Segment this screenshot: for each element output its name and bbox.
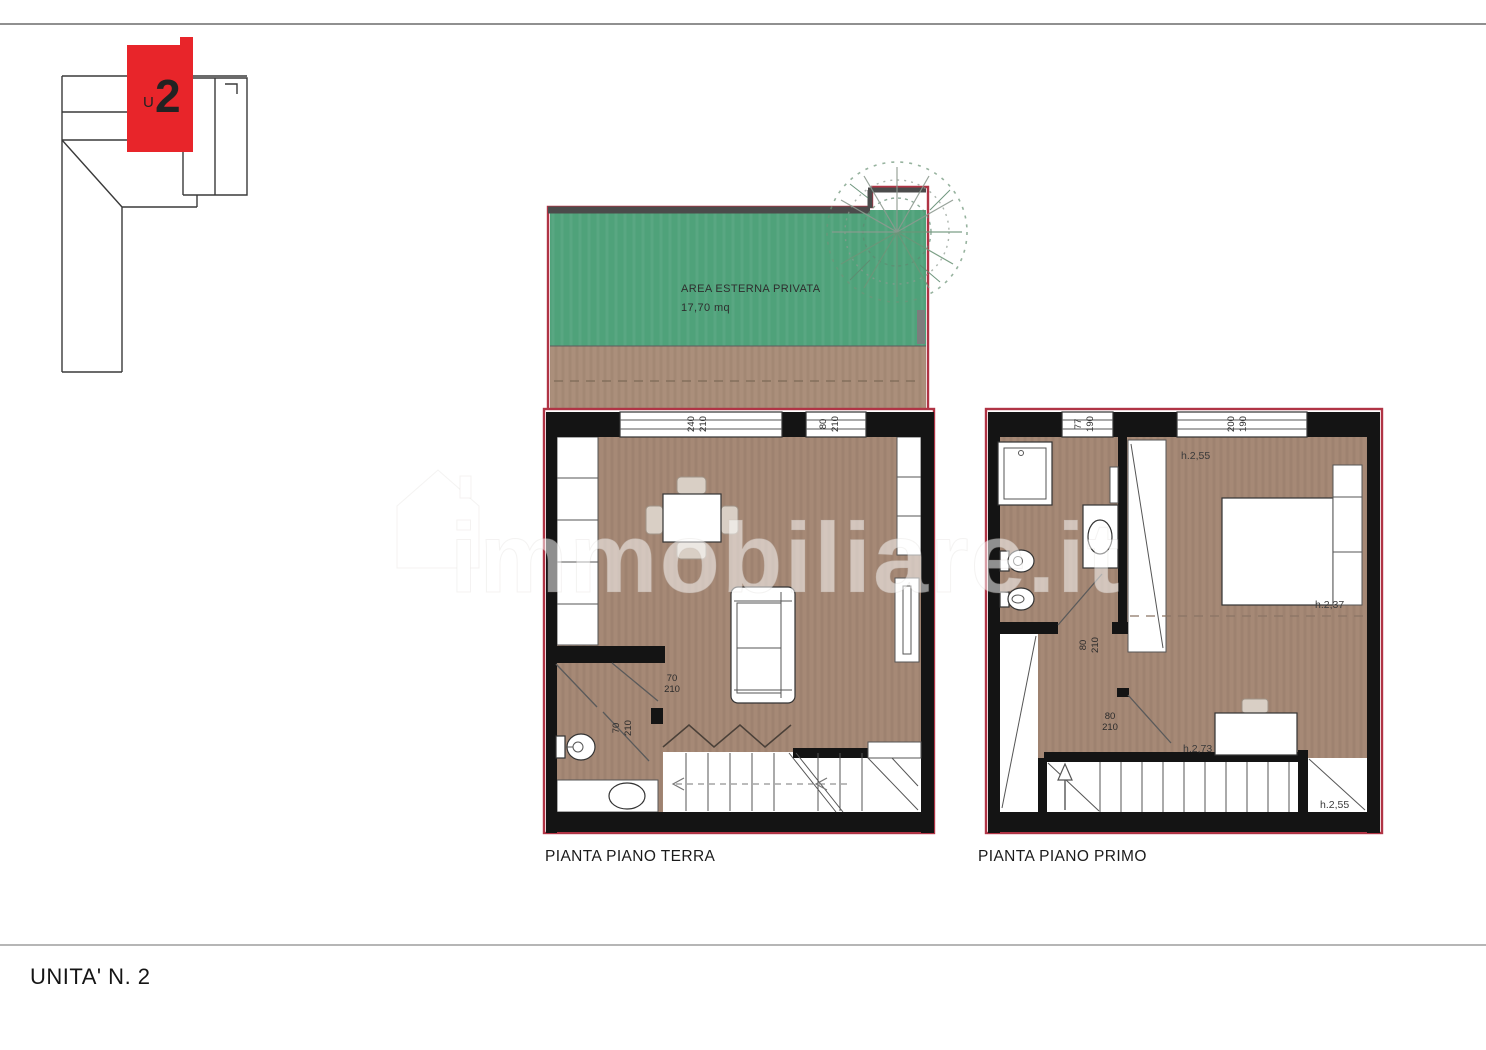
dim-gf-door-hall-h: 210 xyxy=(664,684,680,695)
ff-height-bedroom: h.2,55 xyxy=(1181,450,1210,462)
dim-gf-window-main-h: 210 xyxy=(698,416,709,432)
terrace-pillar xyxy=(917,310,925,344)
key-plan: U 2 xyxy=(62,37,247,372)
dim-ff-window-bath-w: 77 xyxy=(1073,419,1084,430)
gf-stairs-area xyxy=(663,752,921,812)
tree-icon xyxy=(827,162,967,302)
first-floor-plan: 77 190 200 190 80 210 80 210 h.2,55 h.2,… xyxy=(986,409,1382,833)
unit-number-label: 2 xyxy=(155,70,181,122)
terrace-area-value: 17,70 mq xyxy=(681,302,730,314)
ff-shower xyxy=(998,442,1052,505)
footer-unit-label: UNITA' N. 2 xyxy=(30,964,151,989)
terrace-label: AREA ESTERNA PRIVATA xyxy=(681,283,821,295)
terrace-area: AREA ESTERNA PRIVATA 17,70 mq xyxy=(548,162,967,410)
ff-stairs-area xyxy=(1047,762,1298,812)
ff-height-stairs: h.2,73 xyxy=(1183,743,1212,755)
ground-floor-plan: 240 210 80 210 70 210 70 210 xyxy=(544,409,934,833)
dim-ff-door-bath-w: 80 xyxy=(1078,640,1089,651)
ff-radiator xyxy=(1110,467,1118,503)
gf-toilet xyxy=(556,734,595,760)
dim-gf-door-hall-w: 70 xyxy=(667,673,678,684)
unit-prefix-label: U xyxy=(143,94,154,111)
ff-sloped-area-left xyxy=(1000,634,1038,812)
dim-ff-door-stairs-h: 210 xyxy=(1102,722,1118,733)
dim-gf-door-bath-h: 210 xyxy=(623,720,634,736)
gf-bath-wall xyxy=(553,646,665,663)
ff-height-bed-side: h.2,37 xyxy=(1315,599,1344,611)
dim-gf-window-main-w: 240 xyxy=(686,416,697,432)
footer: UNITA' N. 2 xyxy=(0,945,1486,989)
gf-caption: PIANTA PIANO TERRA xyxy=(545,848,716,865)
gf-stair-wall xyxy=(793,748,868,758)
dim-ff-window-bed-w: 200 xyxy=(1226,416,1237,432)
dim-gf-door-bath-w: 70 xyxy=(611,723,622,734)
dim-gf-window-small-w: 80 xyxy=(818,419,829,430)
gf-sink xyxy=(609,783,645,809)
dim-ff-window-bed-h: 190 xyxy=(1238,416,1249,432)
floor-plan-drawing: U 2 AREA ESTERNA PRIVATA 17,70 mq xyxy=(0,0,1486,1050)
ff-wardrobe-strip xyxy=(1128,440,1166,652)
ff-height-landing: h.2,55 xyxy=(1320,799,1349,811)
dim-ff-window-bath-h: 190 xyxy=(1085,416,1096,432)
unit-highlight-tab xyxy=(180,37,193,47)
ff-caption: PIANTA PIANO PRIMO xyxy=(978,848,1147,865)
watermark-text: immobiliare.it xyxy=(450,502,1122,613)
floor-plan-page: U 2 AREA ESTERNA PRIVATA 17,70 mq xyxy=(0,0,1486,1050)
dim-ff-door-bath-h: 210 xyxy=(1090,637,1101,653)
dim-gf-window-small-h: 210 xyxy=(830,416,841,432)
dim-ff-door-stairs-w: 80 xyxy=(1105,711,1116,722)
